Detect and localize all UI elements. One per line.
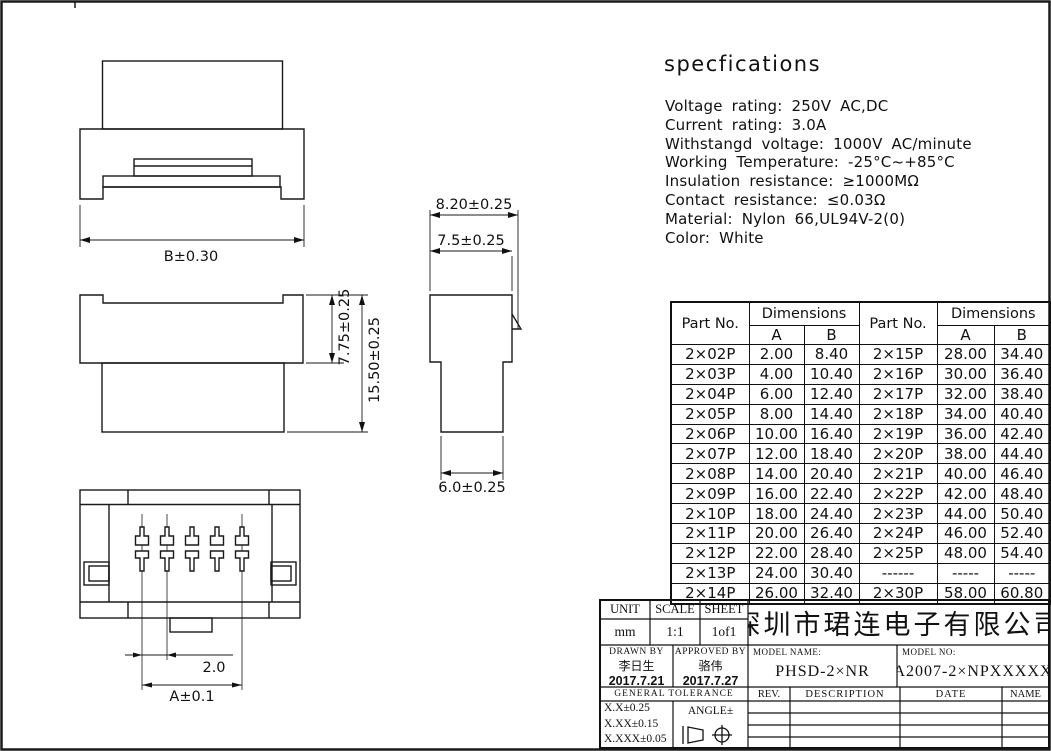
tolerance-list: X.X±0.25 X.XX±0.15 X.XXX±0.05 [600, 701, 677, 748]
dimension-cell: 26.40 [804, 524, 859, 544]
description-column-label: DESCRIPTION [790, 687, 900, 701]
engineering-drawing-sheet: B±0.30 7.75±0.25 15.50±0.25 [0, 0, 1051, 751]
part-no-cell: 2×15P [859, 345, 937, 365]
part-no-cell: 2×21P [859, 464, 937, 484]
profile-total-width-label: 8.20±0.25 [436, 197, 513, 213]
header-col-b-right: B [994, 326, 1050, 345]
table-row: 2×04P6.0012.402×17P32.0038.40 [671, 384, 1050, 404]
spec-line-insulation: Insulation resistance: ≥1000MΩ [665, 172, 972, 191]
bottom-view: 2.0 A±0.1 [80, 490, 300, 705]
header-part-no-right: Part No. [859, 302, 937, 345]
pin-span-label: A±0.1 [169, 689, 214, 705]
spec-line-current: Current rating: 3.0A [665, 116, 972, 135]
dimension-cell: 46.00 [937, 524, 994, 544]
part-no-cell: 2×11P [671, 524, 749, 544]
parts-table-body: 2×02P2.008.402×15P28.0034.402×03P4.0010.… [671, 345, 1050, 604]
tolerance-x: X.X±0.25 [604, 701, 677, 717]
unit-label: UNIT [600, 600, 650, 619]
drawn-by-cell: DRAWN BY 李日生 2017.7.21 [600, 645, 673, 687]
spec-line-contact: Contact resistance: ≤0.03Ω [665, 191, 972, 210]
name-column-label: NAME [1002, 687, 1049, 701]
dimension-cell: 54.40 [994, 543, 1050, 563]
table-row: 2×06P10.0016.402×19P36.0042.40 [671, 424, 1050, 444]
dim-pin-pitch [125, 653, 233, 658]
dimension-cell: 4.00 [749, 364, 804, 384]
dimension-cell: 18.40 [804, 444, 859, 464]
table-row: 2×12P22.0028.402×25P48.0054.40 [671, 543, 1050, 563]
dimension-cell: 36.00 [937, 424, 994, 444]
side-upper-height-label: 7.75±0.25 [337, 289, 353, 366]
dimension-cell: 12.40 [804, 384, 859, 404]
sheet-label: SHEET [700, 600, 748, 619]
header-col-b-left: B [804, 326, 859, 345]
dimension-cell: 14.40 [804, 404, 859, 424]
dimension-cell: 50.40 [994, 504, 1050, 524]
dimension-cell: 30.40 [804, 563, 859, 583]
part-no-cell: 2×23P [859, 504, 937, 524]
parts-dimension-table: Part No. Dimensions Part No. Dimensions … [670, 301, 1051, 605]
spec-list: Voltage rating: 250V AC,DC Current ratin… [665, 97, 972, 247]
dimension-cell: 30.00 [937, 364, 994, 384]
profile-lower-width-label: 6.0±0.25 [438, 480, 506, 496]
general-tolerance-label: GENERAL TOLERANCE [600, 687, 748, 701]
projection-symbol-icon [683, 726, 703, 744]
dimension-cell: 2.00 [749, 345, 804, 365]
unit-value: mm [600, 619, 650, 645]
spec-line-temperature: Working Temperature: -25°C~+85°C [665, 153, 972, 172]
spec-title: specfications [664, 52, 821, 76]
dimension-cell: 42.00 [937, 484, 994, 504]
pin-pitch-label: 2.0 [202, 660, 225, 676]
part-no-cell: 2×09P [671, 484, 749, 504]
table-row: 2×03P4.0010.402×16P30.0036.40 [671, 364, 1050, 384]
part-no-cell: 2×07P [671, 444, 749, 464]
header-dimensions-right: Dimensions [937, 302, 1050, 326]
dimension-cell: 12.00 [749, 444, 804, 464]
part-no-cell: 2×25P [859, 543, 937, 563]
front-width-label: B±0.30 [164, 249, 218, 265]
table-row: 2×02P2.008.402×15P28.0034.40 [671, 345, 1050, 365]
model-no-cell: MODEL NO: A2007-2×NPXXXXX [897, 645, 1049, 687]
part-no-cell: 2×22P [859, 484, 937, 504]
sheet-value: 1of1 [700, 619, 748, 645]
dimension-cell: 8.40 [804, 345, 859, 365]
dimension-cell: 10.00 [749, 424, 804, 444]
approved-by-cell: APPROVED BY 骆伟 2017.7.27 [673, 645, 748, 687]
dimension-cell: 42.40 [994, 424, 1050, 444]
part-no-cell: 2×17P [859, 384, 937, 404]
bottom-tab [170, 618, 212, 632]
part-no-cell: 2×19P [859, 424, 937, 444]
model-name-value: PHSD-2×NR [748, 657, 897, 687]
company-name: 深圳市珺连电子有限公司 [748, 600, 1049, 645]
part-no-cell: 2×04P [671, 384, 749, 404]
dimension-cell: ----- [937, 563, 994, 583]
dimension-cell: 20.40 [804, 464, 859, 484]
profile-body-width-label: 7.5±0.25 [437, 233, 505, 249]
part-no-cell: 2×24P [859, 524, 937, 544]
header-dimensions-left: Dimensions [749, 302, 859, 326]
profile-view: 8.20±0.25 7.5±0.25 6.0±0.25 [430, 197, 521, 496]
dimension-cell: 48.40 [994, 484, 1050, 504]
dimension-cell: 40.40 [994, 404, 1050, 424]
part-no-cell: 2×13P [671, 563, 749, 583]
dimension-cell: 52.40 [994, 524, 1050, 544]
part-no-cell: 2×18P [859, 404, 937, 424]
dimension-cell: ----- [994, 563, 1050, 583]
table-row: 2×10P18.0024.402×23P44.0050.40 [671, 504, 1050, 524]
dimension-cell: 10.40 [804, 364, 859, 384]
approved-by-date: 2017.7.27 [683, 674, 739, 687]
model-name-label: MODEL NAME: [748, 645, 897, 657]
spec-line-color: Color: White [665, 229, 972, 248]
dimension-cell: 16.00 [749, 484, 804, 504]
part-no-cell: 2×20P [859, 444, 937, 464]
dimension-cell: 46.40 [994, 464, 1050, 484]
dimension-cell: 38.00 [937, 444, 994, 464]
spec-line-withstand: Withstangd voltage: 1000V AC/minute [665, 135, 972, 154]
table-row: 2×08P14.0020.402×21P40.0046.40 [671, 464, 1050, 484]
header-col-a-left: A [749, 326, 804, 345]
model-name-cell: MODEL NAME: PHSD-2×NR [748, 645, 897, 687]
dimension-cell: 20.00 [749, 524, 804, 544]
dim-profile-widths [430, 210, 518, 480]
dimension-cell: 44.00 [937, 504, 994, 524]
angle-tolerance-label: ANGLE± [673, 701, 748, 720]
front-view: B±0.30 [80, 61, 304, 265]
datum-target-icon [712, 725, 732, 745]
dimension-cell: 6.00 [749, 384, 804, 404]
dimension-cell: 36.40 [994, 364, 1050, 384]
part-no-cell: 2×10P [671, 504, 749, 524]
part-no-cell: 2×05P [671, 404, 749, 424]
dimension-cell: 28.00 [937, 345, 994, 365]
dimension-cell: 16.40 [804, 424, 859, 444]
scale-value: 1:1 [650, 619, 700, 645]
drawn-by-name: 李日生 [618, 657, 654, 674]
dim-pin-span [142, 683, 242, 688]
spec-line-voltage: Voltage rating: 250V AC,DC [665, 97, 972, 116]
dimension-cell: 48.00 [937, 543, 994, 563]
tolerance-xx: X.XX±0.15 [604, 717, 677, 733]
dimension-cell: 8.00 [749, 404, 804, 424]
dimension-cell: 14.00 [749, 464, 804, 484]
part-no-cell: 2×03P [671, 364, 749, 384]
dimension-cell: 44.40 [994, 444, 1050, 464]
header-col-a-right: A [937, 326, 994, 345]
part-no-cell: 2×02P [671, 345, 749, 365]
table-row: 2×13P24.0030.40---------------- [671, 563, 1050, 583]
part-no-cell: 2×16P [859, 364, 937, 384]
spec-line-material: Material: Nylon 66,UL94V-2(0) [665, 210, 972, 229]
rev-column-label: REV. [748, 687, 790, 701]
dimension-cell: 18.00 [749, 504, 804, 524]
header-part-no-left: Part No. [671, 302, 749, 345]
part-no-cell: ------ [859, 563, 937, 583]
dim-front-width [80, 205, 304, 247]
dimension-cell: 34.40 [994, 345, 1050, 365]
dimension-cell: 24.40 [804, 504, 859, 524]
latch-barb [512, 314, 521, 329]
date-column-label: DATE [900, 687, 1002, 701]
dimension-cell: 24.00 [749, 563, 804, 583]
scale-label: SCALE [650, 600, 700, 619]
part-no-cell: 2×12P [671, 543, 749, 563]
contact-pins [136, 527, 249, 571]
model-no-label: MODEL NO: [897, 645, 1049, 657]
drawn-by-date: 2017.7.21 [609, 674, 665, 687]
dimension-cell: 28.40 [804, 543, 859, 563]
side-total-height-label: 15.50±0.25 [367, 317, 383, 403]
part-no-cell: 2×06P [671, 424, 749, 444]
drawn-by-label: DRAWN BY [609, 647, 664, 657]
dimension-cell: 40.00 [937, 464, 994, 484]
table-row: 2×05P8.0014.402×18P34.0040.40 [671, 404, 1050, 424]
table-row: 2×11P20.0026.402×24P46.0052.40 [671, 524, 1050, 544]
side-view: 7.75±0.25 15.50±0.25 [80, 289, 383, 432]
model-no-value: A2007-2×NPXXXXX [897, 657, 1049, 687]
part-no-cell: 2×08P [671, 464, 749, 484]
dimension-cell: 34.00 [937, 404, 994, 424]
tolerance-xxx: X.XXX±0.05 [604, 732, 677, 748]
table-row: 2×09P16.0022.402×22P42.0048.40 [671, 484, 1050, 504]
approved-by-label: APPROVED BY [675, 647, 746, 657]
table-row: 2×07P12.0018.402×20P38.0044.40 [671, 444, 1050, 464]
dimension-cell: 22.40 [804, 484, 859, 504]
dimension-cell: 32.00 [937, 384, 994, 404]
dimension-cell: 22.00 [749, 543, 804, 563]
approved-by-name: 骆伟 [698, 657, 722, 674]
dimension-cell: 38.40 [994, 384, 1050, 404]
